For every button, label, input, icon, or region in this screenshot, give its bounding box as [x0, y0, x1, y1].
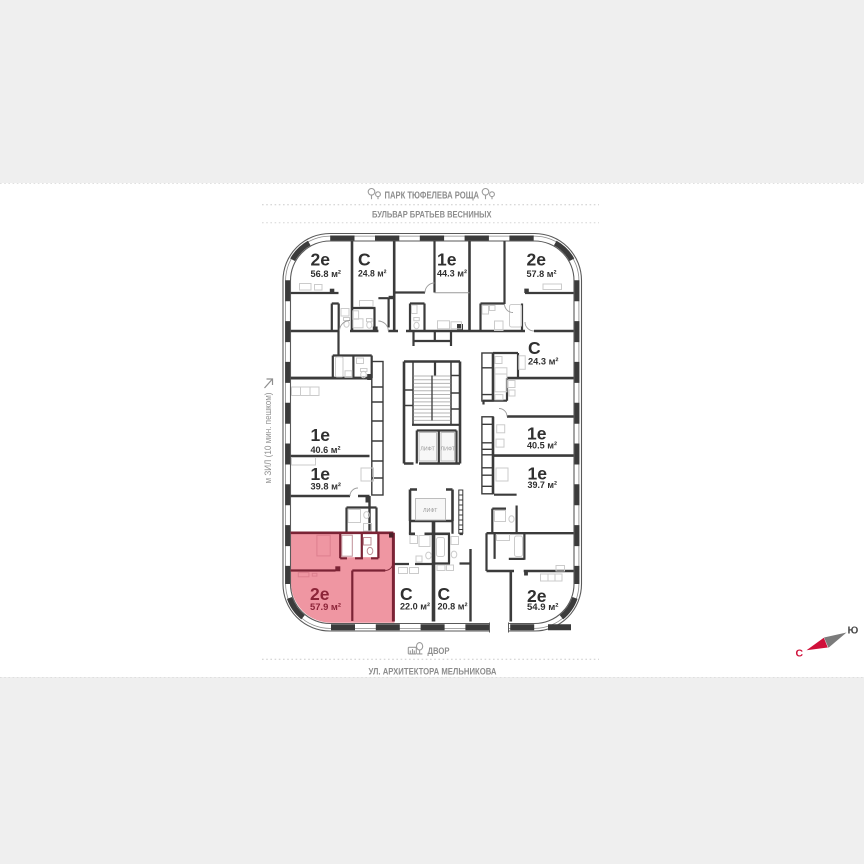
svg-text:С: С: [358, 250, 371, 270]
svg-text:1е: 1е: [311, 425, 331, 445]
svg-text:57.8 м²: 57.8 м²: [527, 269, 557, 280]
svg-text:ДВОР: ДВОР: [428, 646, 450, 657]
svg-text:ЛИФТ: ЛИФТ: [441, 447, 456, 453]
svg-text:39.7 м²: 39.7 м²: [528, 480, 558, 491]
svg-text:39.8 м²: 39.8 м²: [311, 482, 342, 493]
svg-text:2е: 2е: [311, 250, 331, 270]
svg-text:Ю: Ю: [848, 625, 859, 637]
svg-text:С: С: [528, 338, 541, 358]
svg-text:БУЛЬВАР БРАТЬЕВ ВЕСНИНЫХ: БУЛЬВАР БРАТЬЕВ ВЕСНИНЫХ: [372, 210, 492, 220]
svg-text:ЛИФТ: ЛИФТ: [420, 447, 435, 453]
svg-text:22.0 м²: 22.0 м²: [400, 602, 430, 613]
svg-text:54.9 м²: 54.9 м²: [527, 602, 559, 613]
svg-text:м ЗИЛ (10 мин. пешком): м ЗИЛ (10 мин. пешком): [263, 392, 273, 483]
svg-text:44.3 м²: 44.3 м²: [437, 269, 467, 280]
svg-text:56.8 м²: 56.8 м²: [311, 269, 342, 280]
svg-text:УЛ. АРХИТЕКТОРА МЕЛЬНИКОВА: УЛ. АРХИТЕКТОРА МЕЛЬНИКОВА: [369, 666, 497, 677]
svg-text:40.5 м²: 40.5 м²: [527, 441, 557, 452]
svg-text:2е: 2е: [310, 584, 330, 604]
svg-text:2е: 2е: [527, 250, 547, 270]
svg-text:57.9 м²: 57.9 м²: [310, 602, 341, 613]
svg-text:1е: 1е: [437, 250, 457, 270]
svg-text:20.8 м²: 20.8 м²: [438, 602, 468, 613]
svg-text:ПАРК ТЮФЕЛЕВА РОЩА: ПАРК ТЮФЕЛЕВА РОЩА: [385, 190, 480, 201]
svg-text:40.6 м²: 40.6 м²: [311, 445, 341, 456]
svg-text:24.3 м²: 24.3 м²: [528, 357, 559, 368]
svg-text:С: С: [796, 648, 804, 660]
svg-text:24.8 м²: 24.8 м²: [358, 269, 387, 280]
svg-text:ЛИФТ: ЛИФТ: [423, 508, 438, 514]
